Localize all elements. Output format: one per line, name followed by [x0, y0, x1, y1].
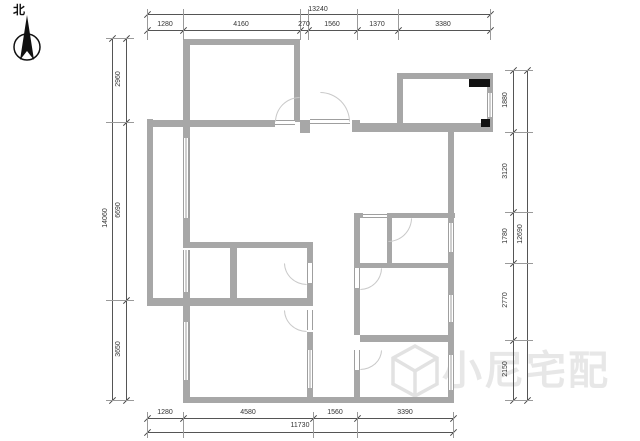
dim-right-seg-1: 1880: [502, 84, 510, 116]
wall-segment: [230, 248, 237, 302]
dim-top-seg-3: 270: [293, 21, 315, 29]
wall-segment: [183, 292, 190, 322]
dimension-line: [527, 70, 528, 400]
dimension-line: [147, 14, 490, 15]
extension-line: [357, 9, 358, 40]
window: [487, 93, 493, 117]
door-swing-arc: [360, 268, 382, 290]
wall-segment: [183, 397, 454, 403]
window: [448, 295, 454, 322]
wall-segment: [307, 283, 313, 298]
dim-bottom-total: 11730: [281, 422, 319, 430]
dimension-line: [147, 30, 490, 31]
dim-right-seg-4: 2770: [502, 284, 510, 316]
extension-line: [505, 263, 533, 264]
dim-right-seg-3: 1780: [502, 220, 510, 252]
extension-line: [106, 122, 134, 123]
plan-geometry: [0, 0, 640, 441]
door-swing-arc: [320, 92, 350, 122]
wall-segment: [448, 322, 454, 355]
door-leaf: [307, 310, 313, 330]
dimension-line: [147, 432, 453, 433]
dim-left-seg-3: 3650: [115, 333, 123, 365]
extension-line: [183, 9, 184, 40]
door-swing-arc: [360, 350, 382, 370]
extension-line: [505, 132, 533, 133]
wall-segment: [397, 79, 403, 123]
dim-right-seg-2: 3120: [502, 155, 510, 187]
wall-segment: [183, 242, 313, 248]
dimension-line: [126, 38, 127, 400]
window: [307, 350, 313, 388]
extension-line: [147, 9, 148, 40]
wall-segment: [147, 120, 275, 127]
extension-line: [505, 70, 533, 71]
door-swing-arc: [284, 263, 307, 285]
dim-top-seg-4: 1560: [316, 21, 348, 29]
dim-top-total: 13240: [296, 6, 340, 14]
wall-segment: [183, 380, 190, 397]
wall-segment: [448, 268, 454, 295]
window: [183, 322, 190, 380]
dim-left-seg-2: 6690: [115, 194, 123, 226]
extension-line: [357, 412, 358, 438]
wall-segment: [183, 39, 300, 45]
dimension-line: [147, 418, 453, 419]
wall-segment: [448, 132, 454, 213]
dim-right-total: 12690: [517, 215, 525, 253]
dimension-line: [513, 70, 514, 400]
north-arrow: 北: [6, 1, 48, 63]
wall-segment: [183, 45, 190, 122]
wall-segment: [360, 335, 454, 342]
extension-line: [398, 9, 399, 40]
floorplan-canvas: 北 小尼宅配 13240 1280 4160 270 1560 1370 338…: [0, 0, 640, 441]
black-fixture: [481, 119, 490, 127]
dim-left-total: 14060: [102, 199, 110, 237]
extension-line: [453, 412, 454, 438]
door-swing-arc: [275, 97, 300, 122]
window: [448, 223, 454, 252]
extension-line: [505, 340, 533, 341]
dim-top-seg-1: 1280: [149, 21, 181, 29]
dim-bottom-seg-2: 4580: [232, 409, 264, 417]
wall-segment: [147, 119, 153, 306]
extension-line: [106, 400, 134, 401]
window: [448, 355, 454, 390]
dim-top-seg-5: 1370: [361, 21, 393, 29]
dim-bottom-seg-4: 3390: [389, 409, 421, 417]
wall-segment: [354, 288, 360, 335]
extension-line: [490, 9, 491, 40]
door-swing-arc: [388, 218, 412, 242]
dim-top-seg-2: 4160: [225, 21, 257, 29]
extension-line: [106, 300, 134, 301]
dim-left-seg-1: 2960: [115, 63, 123, 95]
extension-line: [106, 38, 134, 39]
wall-segment: [307, 248, 313, 263]
wall-segment: [147, 298, 313, 306]
dimension-line: [112, 38, 113, 400]
wall-segment: [183, 122, 190, 138]
extension-line: [183, 412, 184, 438]
extension-line: [505, 400, 533, 401]
black-fixture: [469, 79, 490, 87]
dim-top-seg-6: 3380: [427, 21, 459, 29]
wall-segment: [448, 252, 454, 268]
wall-segment: [354, 213, 360, 268]
door-leaf: [307, 263, 313, 283]
wall-segment: [307, 332, 313, 350]
wall-segment: [354, 213, 363, 218]
door-leaf: [363, 214, 387, 218]
dim-right-seg-5: 2150: [502, 353, 510, 385]
compass-icon: [6, 14, 48, 64]
dim-bottom-seg-1: 1280: [149, 409, 181, 417]
extension-line: [505, 212, 533, 213]
window: [183, 138, 190, 218]
wall-segment: [352, 123, 493, 132]
extension-line: [147, 412, 148, 438]
dim-bottom-seg-3: 1560: [319, 409, 351, 417]
window: [183, 250, 190, 292]
wall-segment: [300, 120, 310, 133]
door-swing-arc: [284, 310, 307, 332]
